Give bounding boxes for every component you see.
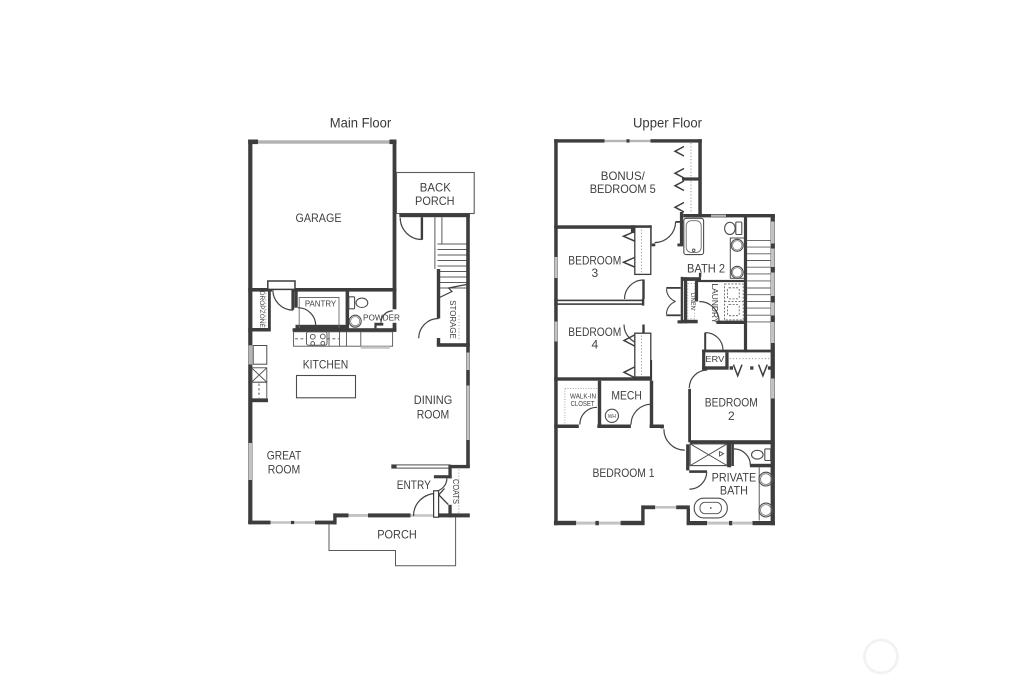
- svg-text:ROOM: ROOM: [268, 462, 301, 476]
- svg-text:STORAGE: STORAGE: [448, 300, 458, 339]
- svg-text:DINING: DINING: [414, 393, 453, 407]
- svg-text:BONUS/: BONUS/: [601, 169, 646, 183]
- svg-text:GARAGE: GARAGE: [296, 211, 342, 225]
- svg-text:POWDER: POWDER: [363, 313, 400, 323]
- svg-text:COATS: COATS: [451, 479, 461, 504]
- svg-text:Upper Floor: Upper Floor: [633, 115, 702, 131]
- svg-text:BEDROOM 5: BEDROOM 5: [590, 182, 656, 196]
- svg-text:ERV: ERV: [705, 354, 724, 364]
- svg-text:PORCH: PORCH: [377, 528, 417, 542]
- svg-text:GREAT: GREAT: [267, 448, 302, 462]
- svg-text:DROPZONE: DROPZONE: [258, 291, 265, 329]
- svg-text:KITCHEN: KITCHEN: [303, 357, 349, 371]
- svg-text:WH: WH: [608, 414, 616, 420]
- svg-text:BEDROOM: BEDROOM: [705, 396, 758, 410]
- svg-text:MECH: MECH: [611, 388, 642, 402]
- svg-text:BACK: BACK: [420, 181, 451, 195]
- svg-text:BATH: BATH: [720, 484, 748, 498]
- svg-text:PRIVATE: PRIVATE: [712, 471, 757, 485]
- svg-text:PORCH: PORCH: [415, 194, 455, 208]
- svg-text:Main Floor: Main Floor: [330, 115, 392, 131]
- svg-text:LAUNDRY: LAUNDRY: [710, 284, 720, 324]
- svg-text:3: 3: [591, 266, 598, 280]
- svg-text:CLOSET: CLOSET: [571, 399, 595, 408]
- svg-text:LINEN: LINEN: [689, 293, 696, 310]
- svg-text:ROOM: ROOM: [417, 407, 450, 421]
- svg-text:BEDROOM 1: BEDROOM 1: [593, 466, 655, 480]
- svg-text:4: 4: [591, 338, 598, 352]
- svg-text:2: 2: [728, 409, 735, 423]
- svg-text:BATH 2: BATH 2: [687, 261, 725, 275]
- svg-text:PANTRY: PANTRY: [305, 298, 336, 308]
- svg-text:ENTRY: ENTRY: [397, 478, 431, 492]
